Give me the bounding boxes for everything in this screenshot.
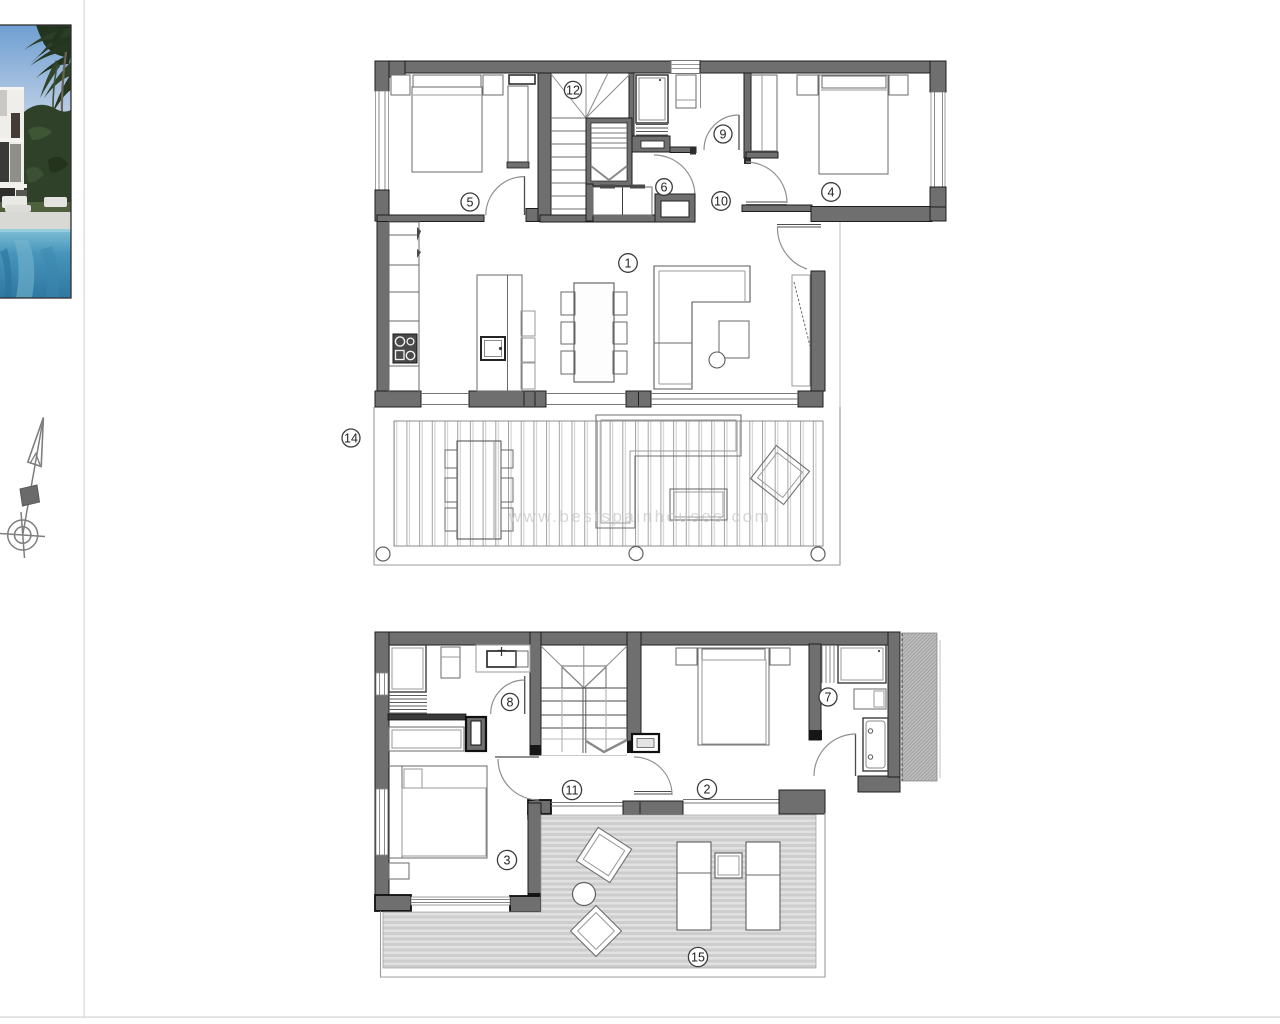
svg-text:4: 4	[828, 185, 835, 199]
svg-text:15: 15	[691, 950, 705, 964]
svg-text:1: 1	[625, 256, 632, 270]
svg-text:7: 7	[825, 690, 832, 704]
svg-text:11: 11	[566, 783, 579, 797]
svg-text:12: 12	[566, 83, 580, 97]
svg-text:6: 6	[661, 180, 668, 194]
svg-text:8: 8	[507, 695, 514, 709]
svg-text:14: 14	[344, 431, 358, 445]
svg-text:2: 2	[704, 782, 711, 796]
svg-text:www.bestspainhouses.com: www.bestspainhouses.com	[508, 507, 772, 526]
svg-text:10: 10	[714, 194, 728, 208]
svg-text:9: 9	[720, 127, 727, 141]
svg-text:5: 5	[467, 195, 474, 209]
svg-text:3: 3	[504, 853, 511, 867]
